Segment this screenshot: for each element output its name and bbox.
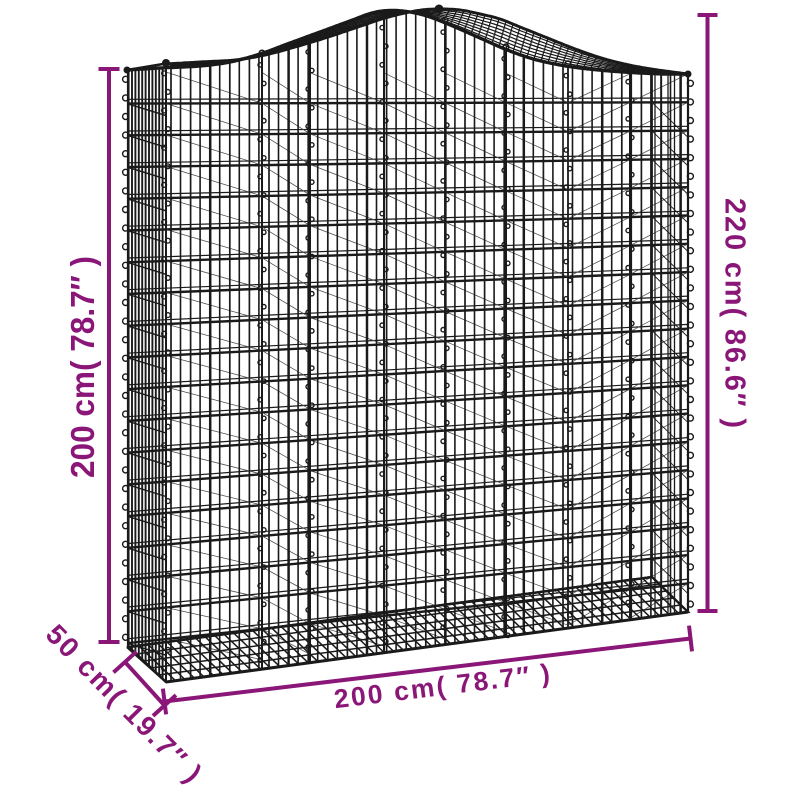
svg-text:200 cm( 78.7″ ): 200 cm( 78.7″ ) <box>65 256 102 478</box>
